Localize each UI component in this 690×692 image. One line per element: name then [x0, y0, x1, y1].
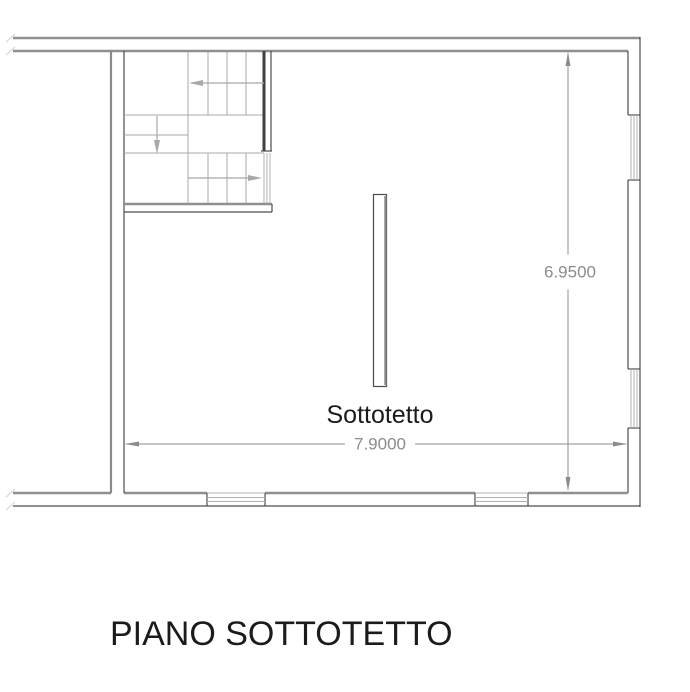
bottom-wall: [13, 493, 640, 506]
arrow-down-icon: [566, 477, 571, 491]
interior-wall: [111, 51, 124, 493]
width-dimension-label: 7.9000: [345, 433, 415, 456]
stair-direction-arrows: [154, 80, 264, 181]
arrow-up-icon: [566, 52, 571, 66]
height-dimension-label: 6.9500: [539, 255, 601, 290]
plan-title: PIANO SOTTOTETTO: [110, 616, 453, 653]
right-arrow-icon: [248, 175, 262, 181]
window-bottom-right: [475, 493, 528, 506]
floor-plan-canvas: Sottotetto 7.9000 6.9500 PIANO SOTTOTETT…: [0, 0, 690, 692]
wall-break-marks: [6, 34, 15, 510]
window-right-lower: [628, 369, 640, 428]
down-arrow-icon: [154, 140, 160, 154]
staircase: [124, 52, 264, 204]
right-wall: [628, 37, 640, 507]
arrow-right-icon: [613, 442, 627, 447]
room-label: Sottotetto: [326, 401, 433, 430]
window-bottom-left: [207, 493, 265, 506]
top-wall: [13, 38, 640, 51]
left-arrow-icon: [189, 80, 203, 86]
window-right-upper: [628, 115, 640, 180]
staircase-bottom-wall: [124, 204, 272, 212]
arrow-left-icon: [125, 442, 139, 447]
floor-plan-drawing: [0, 0, 690, 692]
chimney-element: [374, 195, 387, 387]
staircase-right-wall: [261, 51, 272, 204]
